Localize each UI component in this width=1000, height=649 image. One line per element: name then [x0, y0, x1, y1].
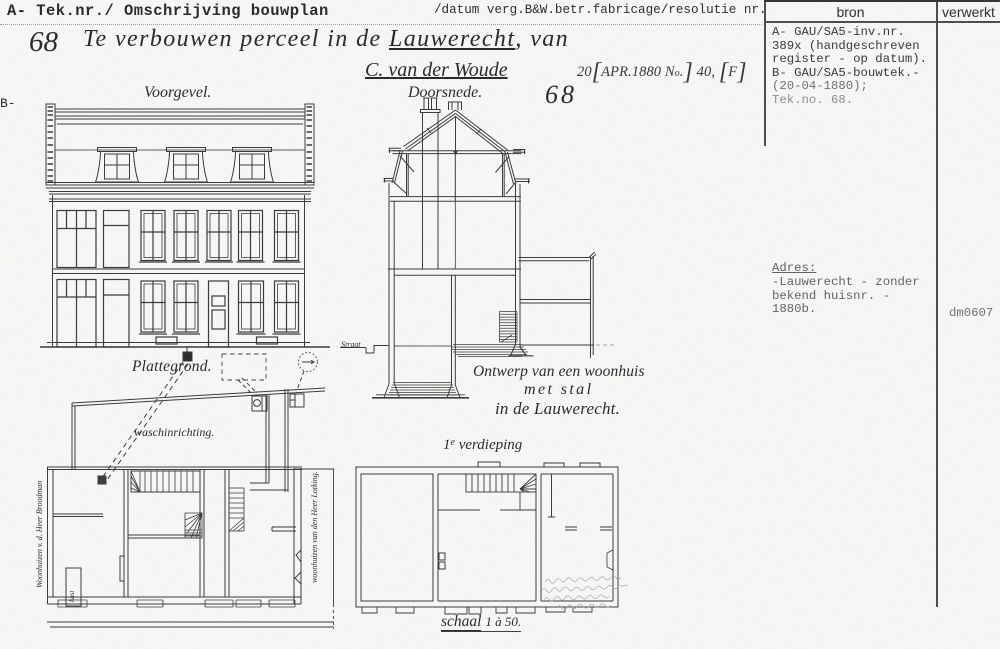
svg-text:waschinrichting.: waschinrichting. [134, 425, 214, 439]
svg-text:woonhuizen van den Heer Lotkin: woonhuizen van den Heer Lotking. [310, 471, 319, 583]
svg-text:kast: kast [68, 590, 76, 602]
svg-text:Woonhuizen v. d. Heer Broodman: Woonhuizen v. d. Heer Broodman [35, 481, 44, 588]
